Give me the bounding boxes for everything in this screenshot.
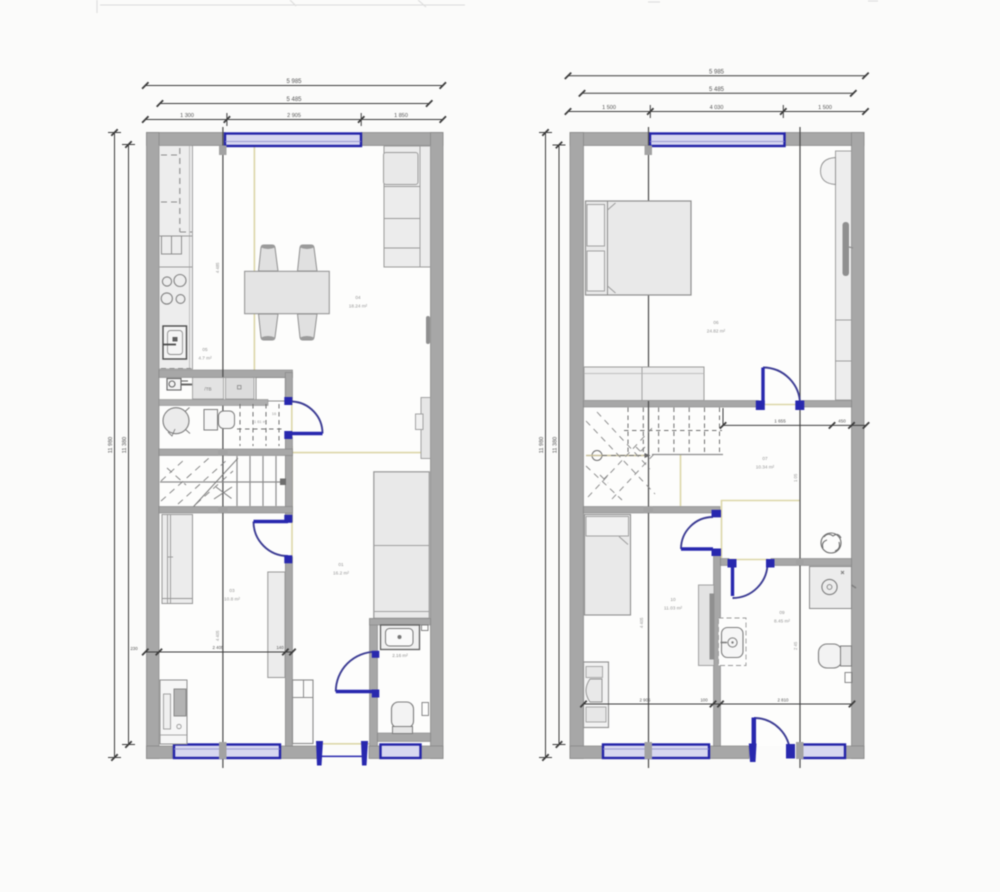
svg-text:5 985: 5 985 — [286, 79, 302, 85]
svg-text:/TB: /TB — [204, 387, 211, 392]
svg-text:1 500: 1 500 — [602, 105, 616, 111]
svg-text:1 05: 1 05 — [793, 473, 798, 482]
svg-text:2 45: 2 45 — [793, 641, 798, 650]
svg-text:06: 06 — [713, 320, 719, 325]
svg-text:2 810: 2 810 — [778, 698, 790, 703]
svg-text:10.8 m²: 10.8 m² — [224, 597, 240, 602]
svg-text:05: 05 — [202, 347, 208, 352]
svg-text:24.82 m²: 24.82 m² — [707, 329, 726, 334]
svg-text:11.03 m²: 11.03 m² — [664, 606, 683, 611]
svg-text:16.2 m²: 16.2 m² — [333, 571, 349, 576]
svg-text:1 61 m: 1 61 m — [254, 419, 267, 424]
svg-text:09: 09 — [779, 610, 785, 615]
svg-text:01: 01 — [338, 562, 344, 567]
svg-text:11 380: 11 380 — [122, 437, 128, 453]
svg-text:11 980: 11 980 — [108, 437, 114, 453]
svg-text:2 905: 2 905 — [287, 113, 301, 119]
svg-text:11 380: 11 380 — [553, 437, 559, 453]
svg-text:1 655: 1 655 — [774, 419, 786, 424]
svg-text:450: 450 — [838, 419, 846, 424]
svg-text:10: 10 — [670, 597, 676, 602]
svg-text:10.34 m²: 10.34 m² — [756, 465, 775, 470]
svg-text:1 850: 1 850 — [394, 113, 408, 119]
svg-text:140: 140 — [276, 645, 284, 650]
svg-text:4 405: 4 405 — [639, 617, 644, 628]
svg-text:5 485: 5 485 — [709, 87, 725, 93]
svg-text:04: 04 — [355, 295, 361, 300]
svg-text:16: 16 — [272, 411, 277, 416]
svg-text:100: 100 — [700, 698, 708, 703]
svg-text:5 485: 5 485 — [286, 97, 302, 103]
svg-text:1 300: 1 300 — [180, 113, 194, 119]
svg-text:2 405: 2 405 — [213, 645, 225, 650]
svg-text:2.16 m²: 2.16 m² — [392, 653, 408, 658]
svg-text:4 485: 4 485 — [215, 262, 220, 273]
svg-text:1 500: 1 500 — [818, 105, 832, 111]
svg-text:5 985: 5 985 — [709, 69, 725, 75]
svg-text:2 905: 2 905 — [640, 698, 652, 703]
svg-text:11 980: 11 980 — [539, 437, 545, 453]
svg-text:4.7 m²: 4.7 m² — [198, 356, 212, 361]
svg-text:8.45 m²: 8.45 m² — [774, 619, 790, 624]
svg-text:230: 230 — [130, 646, 138, 651]
svg-text:18.24 m²: 18.24 m² — [349, 304, 368, 309]
svg-text:4 405: 4 405 — [215, 630, 220, 641]
svg-text:4 030: 4 030 — [710, 105, 724, 111]
svg-text:03: 03 — [229, 588, 235, 593]
svg-text:07: 07 — [762, 456, 768, 461]
